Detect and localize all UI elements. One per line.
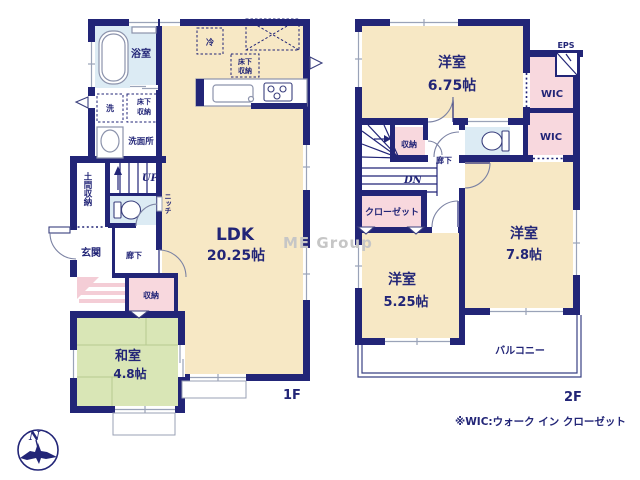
floor-1f-plan: 浴室 洗 床下 収納 洗面所 土間収納 UP ニッチ 玄関 廊下 収納 冷 床下… (49, 19, 322, 435)
floor-label-1f: 1F (283, 388, 301, 403)
toilet-bowl-2f (482, 132, 502, 150)
room-label-525: 洋室 (388, 271, 416, 288)
floor-2f-plan: 洋室 6.75帖 EPS WIC WIC 収納 廊下 DN クローゼット 洋室 … (355, 19, 583, 405)
door-gap (432, 227, 458, 233)
compass-n-label: N (28, 429, 41, 443)
label-underfloor-kitchen-2: 収納 (238, 66, 252, 75)
label-wic-1: WIC (541, 89, 563, 100)
floor-plan-image: 浴室 洗 床下 収納 洗面所 土間収納 UP ニッチ 玄関 廊下 収納 冷 床下… (0, 0, 640, 480)
room-label-washitsu: 和室 (115, 348, 141, 364)
room-label-ldk: LDK (216, 225, 255, 245)
bath-counter (132, 27, 156, 33)
porch-stripe (79, 299, 128, 303)
wall (88, 19, 95, 159)
door-gap (459, 163, 465, 188)
room-label-storage-2f: 収納 (401, 139, 417, 149)
faucet (249, 97, 254, 102)
porch-stripe (79, 283, 128, 287)
wall (303, 19, 310, 381)
room-label-525-size: 5.25帖 (383, 294, 428, 310)
room-label-washer: 洗 (106, 103, 114, 113)
room-label-78-size: 7.8帖 (506, 247, 542, 263)
room-label-hall-2f: 廊下 (436, 155, 452, 165)
wic-footnote: ※WIC:ウォーク イン クローゼット (455, 415, 626, 428)
garden-step (182, 381, 246, 398)
room-label-ldk-size: 20.25帖 (207, 247, 265, 264)
toilet-tank-2f (502, 131, 509, 151)
room-675-floor (358, 19, 530, 125)
wall (423, 125, 428, 140)
label-niche: ニッチ (164, 193, 172, 214)
wall (459, 155, 465, 163)
label-underfloor-2: 収納 (137, 107, 151, 116)
label-wic-2: WIC (540, 132, 562, 143)
wall (523, 108, 580, 113)
room-label-675: 洋室 (438, 54, 466, 71)
wall (156, 230, 162, 250)
compass-bird-icon (20, 443, 57, 464)
room-label-bath: 浴室 (131, 47, 151, 60)
room-label-675-size: 6.75帖 (428, 77, 477, 94)
kitchen-sink (213, 85, 253, 102)
shutter-marker (310, 57, 322, 69)
wall (459, 188, 465, 345)
room-label-hall-1f: 廊下 (126, 250, 142, 260)
wall (125, 273, 129, 315)
bathtub-inner (102, 34, 125, 81)
kitchen-counter (196, 79, 307, 109)
room-label-doma-storage: 土間収納 (82, 171, 92, 207)
label-eps: EPS (557, 41, 574, 50)
wall (108, 193, 158, 196)
label-underfloor-kitchen-1: 床下 (238, 57, 252, 66)
wall (523, 113, 528, 162)
label-stairs-up: UP (142, 173, 159, 184)
label-underfloor-1: 床下 (137, 97, 151, 106)
watermark: ME Group (283, 234, 373, 252)
wall (174, 273, 178, 315)
label-fridge: 冷 (206, 37, 214, 47)
floor-label-2f: 2F (564, 390, 582, 405)
washitsu-step (113, 413, 175, 435)
wall (459, 125, 465, 130)
porch-stripe (79, 291, 128, 295)
shutter-marker (76, 97, 88, 108)
wall (112, 273, 178, 278)
room-label-genkan: 玄関 (81, 246, 101, 259)
entrance-door-gap (70, 230, 77, 260)
label-stairs-down: DN (403, 175, 423, 186)
room-label-balcony: バルコニー (495, 345, 545, 357)
sink-bowl (101, 130, 119, 152)
wall (355, 190, 427, 196)
room-label-washroom: 洗面所 (128, 136, 154, 147)
compass-north-indicator: N (18, 429, 58, 470)
entrance-door-leaf (49, 227, 70, 233)
wall (112, 227, 115, 273)
room-label-washitsu-size: 4.8帖 (113, 366, 146, 381)
wall (573, 50, 580, 315)
niche-recess (157, 197, 162, 211)
floor-plan-svg: 浴室 洗 床下 収納 洗面所 土間収納 UP ニッチ 玄関 廊下 収納 冷 床下… (0, 0, 640, 480)
wall (92, 19, 310, 26)
toilet-tank (114, 202, 121, 218)
room-label-storage-1f: 収納 (143, 290, 159, 300)
room-label-78: 洋室 (510, 225, 538, 242)
door-gap (459, 130, 465, 155)
room-label-closet: クローゼット (365, 206, 419, 218)
